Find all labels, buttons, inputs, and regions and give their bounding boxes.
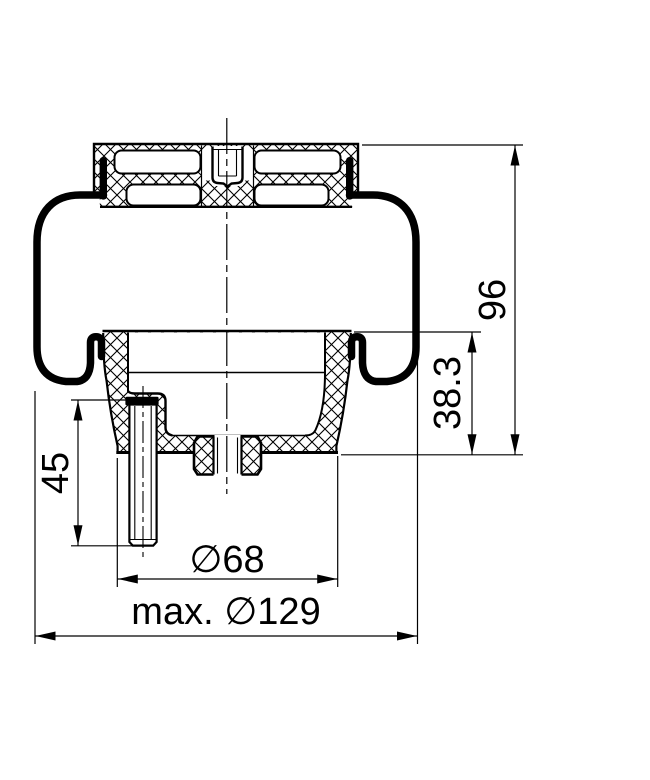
dimension-stud-length: 45 [35,452,77,494]
dimension-max-diameter: max. ∅129 [131,591,320,633]
mounting-stud [125,386,158,560]
dimension-lower-height: 38.3 [427,356,469,430]
bottom-boss [194,435,261,476]
dimension-overall-height: 96 [472,279,514,321]
technical-drawing-sheet: 96 38.3 45 ∅68 max. ∅129 [0,0,650,780]
dimension-piston-diameter: ∅68 [189,539,264,581]
upper-bead-plate [93,144,360,210]
air-spring-cross-section-drawing: 96 38.3 45 ∅68 max. ∅129 [0,0,650,780]
bellows-right-wall [350,195,417,382]
bellows-left-wall [37,195,104,382]
threaded-hole [212,146,243,187]
